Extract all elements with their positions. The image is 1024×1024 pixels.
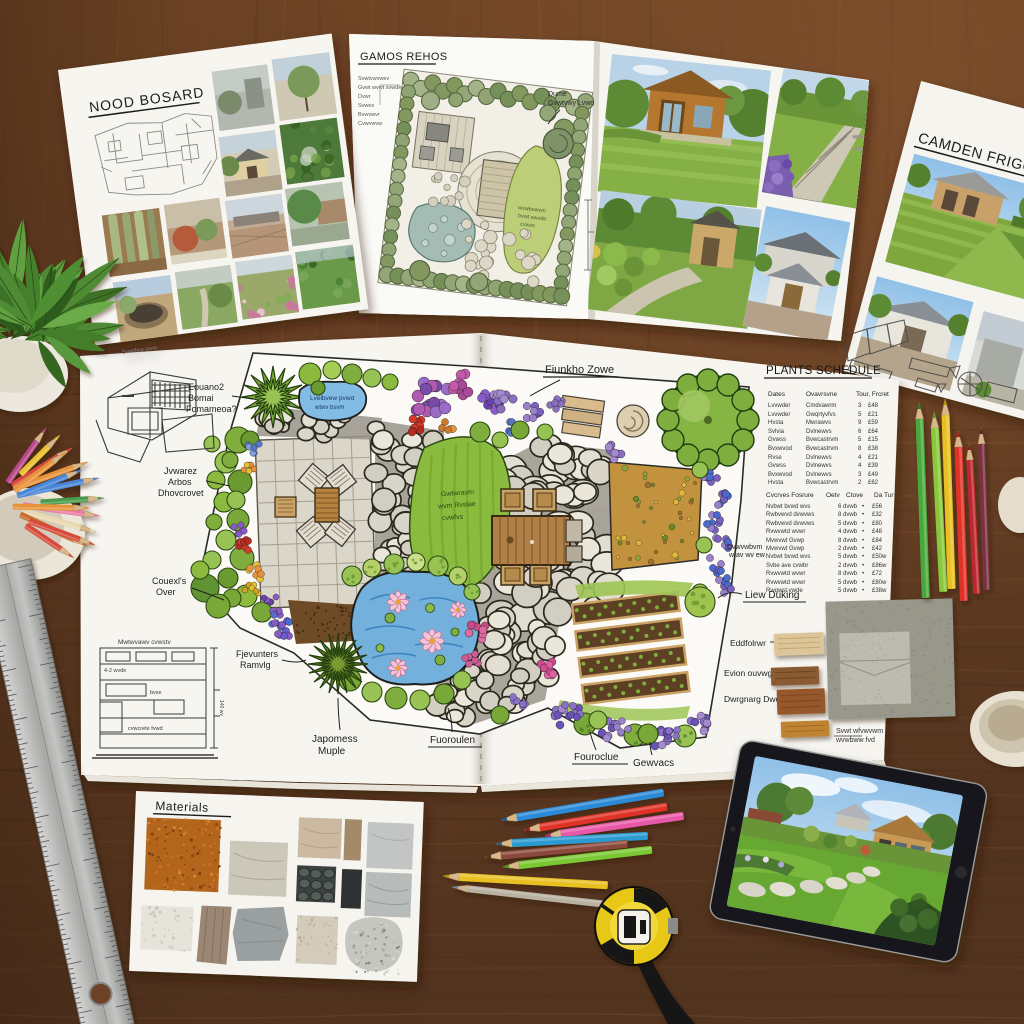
svg-text:Cvcrves Fosrure: Cvcrves Fosrure [766,492,814,499]
svg-text:£48: £48 [868,403,879,409]
svg-text:cvwfvs: cvwfvs [442,514,464,522]
svg-text:Bvwcastrvm: Bvwcastrvm [806,446,838,452]
svg-text:•: • [862,580,864,586]
svg-text:Svbe ave cvwbr: Svbe ave cvwbr [766,563,808,569]
svg-text:£42: £42 [872,546,883,552]
svg-text:Fomameoa?: Fomameoa? [186,404,237,414]
svg-text:£49: £49 [868,472,879,478]
svg-text:Over: Over [156,587,176,597]
svg-text:Materials: Materials [155,799,209,815]
svg-text:bvse: bvse [150,690,162,696]
svg-text:cvwcrete fvwd: cvwcrete fvwd [128,726,163,732]
svg-text:£38: £38 [868,446,879,452]
svg-text:Tour, Frcret: Tour, Frcret [856,391,889,398]
svg-text:Rvse: Rvse [768,455,782,461]
svg-text:Couexl's: Couexl's [152,576,187,586]
svg-text:£84: £84 [872,538,883,544]
svg-text:Hvsta: Hvsta [768,420,784,426]
svg-text:Cmdvawrm: Cmdvawrm [806,403,836,409]
svg-text:2 dvwb: 2 dvwb [838,546,858,552]
svg-text:Bvxwvod: Bvxwvod [768,446,792,452]
svg-text:w av wv ew: w av wv ew [728,552,766,559]
svg-text:Fjevunters: Fjevunters [236,649,279,659]
svg-text:£62: £62 [868,480,879,486]
svg-text:Lvvwder: Lvvwder [768,403,790,409]
svg-text:Bvwcastrvm: Bvwcastrvm [806,437,838,443]
svg-text:Mwrawvs: Mwrawvs [806,420,831,426]
svg-text:5 dvwb: 5 dvwb [838,580,858,586]
svg-text:Svwes: Svwes [358,103,374,109]
svg-text:Muple: Muple [318,746,346,757]
svg-text:Eddfolrwr: Eddfolrwr [730,638,766,648]
svg-text:£21: £21 [868,455,879,461]
svg-text:Svlvia: Svlvia [768,429,785,435]
svg-text:Dvwr: Dvwr [358,94,371,100]
svg-text:5 dvwb: 5 dvwb [838,588,858,594]
svg-text:£21: £21 [868,412,879,418]
svg-text:£86w: £86w [872,563,887,569]
svg-text:£59: £59 [868,420,879,426]
svg-text:Dvlnewvs: Dvlnewvs [806,472,832,478]
svg-text:Lvvwder: Lvvwder [768,412,790,418]
svg-text:£38w: £38w [872,588,887,594]
svg-text:Dhovcrovet: Dhovcrovet [158,488,204,498]
svg-text:Fiunkho Zowe: Fiunkho Zowe [545,364,614,376]
svg-text:Dwrgnarg Dwe: Dwrgnarg Dwe [724,694,780,704]
svg-text:Dvlnewvs: Dvlnewvs [806,455,832,461]
svg-text:£72: £72 [872,571,883,577]
svg-text:•: • [862,554,864,560]
svg-text:Gvwss: Gvwss [768,437,786,443]
svg-text:Ovavrsvne: Ovavrsvne [806,391,837,398]
svg-text:£48: £48 [872,529,883,535]
svg-text:Ramvlg: Ramvlg [240,660,271,670]
svg-text:wtwv bsvm: wtwv bsvm [314,405,344,411]
svg-text:5 dvwb: 5 dvwb [838,521,858,527]
svg-text:8 dvwb: 8 dvwb [838,512,858,518]
svg-text:2 dvwb: 2 dvwb [838,563,858,569]
svg-text:£50w: £50w [872,554,887,560]
svg-text:•: • [862,571,864,577]
svg-text:Rvwvwtd wvwr: Rvwvwtd wvwr [766,580,805,586]
svg-text:Jvwarez: Jvwarez [164,466,198,476]
svg-text:£80: £80 [872,521,883,527]
svg-text:Eouano2: Eouano2 [188,382,224,392]
svg-text:Rwbvwvd dvwvws: Rwbvwvd dvwvws [766,512,814,518]
svg-text:Arbos: Arbos [168,477,192,487]
svg-text:Bvxwvod: Bvxwvod [768,472,792,478]
svg-text:£39: £39 [868,463,879,469]
svg-text:Gvwtvwy Lvwo: Gvwtvwy Lvwo [548,100,594,107]
svg-text:£15: £15 [868,437,879,443]
svg-text:Gwqrtyvfvs: Gwqrtyvfvs [806,412,836,418]
svg-text:Gewvacs: Gewvacs [633,758,674,769]
svg-text:Da Tur: Da Tur [874,492,894,499]
svg-text:•: • [862,563,864,569]
svg-text:Dvlnewvs: Dvlnewvs [806,463,832,469]
svg-text:4 dvwb: 4 dvwb [838,529,858,535]
svg-text:£32: £32 [872,512,883,518]
svg-text:Rvwvwtd wvwr: Rvwvwtd wvwr [766,571,805,577]
svg-text:Mvwvwt Gvwp: Mvwvwt Gvwp [766,546,805,552]
svg-text:wvwbww fvd: wvwbww fvd [835,737,875,744]
svg-text:Svwtvwvwev: Svwtvwvwev [358,76,389,82]
svg-text:8 dvwb: 8 dvwb [838,538,858,544]
svg-text:Dvwvwbvm: Dvwvwbvm [727,544,763,551]
svg-text:Fouroclue: Fouroclue [574,752,619,763]
svg-text:Rvwvwtd wvwr: Rvwvwtd wvwr [766,529,805,535]
svg-text:Nvbwt bvwd wvs: Nvbwt bvwd wvs [766,554,810,560]
svg-text:Oetv: Oetv [826,492,840,499]
svg-text:Rwbvwvd dvwvws: Rwbvwvd dvwvws [766,521,814,527]
svg-text:Mwtwvawv cvwstv: Mwtwvawv cvwstv [118,639,171,646]
svg-text:4-2 wvde: 4-2 wvde [104,668,126,674]
svg-text:Nvbwt bvwd wvs: Nvbwt bvwd wvs [766,504,810,510]
svg-text:Lvelbvew pvwd: Lvelbvew pvwd [310,395,354,402]
svg-text:Svwt wfvwvwm: Svwt wfvwvwm [836,728,883,735]
svg-text:Mvwvwt Gvwp: Mvwvwt Gvwp [766,538,805,544]
svg-text:Bvwvwvr: Bvwvwvr [358,112,380,118]
svg-text:£56: £56 [872,504,883,510]
svg-text:£80w: £80w [872,580,887,586]
svg-text:•: • [862,521,864,527]
svg-text:Bomai: Bomai [188,393,214,403]
svg-text:Evion ouvwg: Evion ouvwg [724,668,772,678]
svg-text:Japomess: Japomess [312,734,358,745]
svg-text:•: • [862,504,864,510]
svg-text:Dates: Dates [768,391,786,398]
svg-text:Bvwcastrvm: Bvwcastrvm [806,480,838,486]
svg-text:Cvwvwvw: Cvwvwvw [358,121,382,127]
svg-text:140 wv: 140 wv [218,700,224,716]
svg-text:•: • [862,538,864,544]
svg-text:Rwqwst vwde: Rwqwst vwde [766,588,803,594]
svg-text:8 dvwb: 8 dvwb [838,571,858,577]
svg-text:Gvwss: Gvwss [768,463,786,469]
svg-text:Hvsta: Hvsta [768,480,784,486]
svg-text:Dvlnewvs: Dvlnewvs [806,429,832,435]
svg-text:PLANTS SCHEDULE: PLANTS SCHEDULE [766,365,881,377]
svg-text:•: • [862,546,864,552]
svg-text:Dume: Dume [548,91,567,98]
svg-text:•: • [862,512,864,518]
svg-text:•: • [862,588,864,594]
svg-text:5 dvwb: 5 dvwb [838,554,858,560]
svg-text:Ctove: Ctove [846,492,863,499]
svg-text:GAMOS REHOS: GAMOS REHOS [360,51,448,63]
svg-text:Fuoroulen: Fuoroulen [430,735,475,746]
svg-text:£64: £64 [868,429,879,435]
svg-text:6 dvwb: 6 dvwb [838,504,858,510]
svg-text:•: • [862,529,864,535]
